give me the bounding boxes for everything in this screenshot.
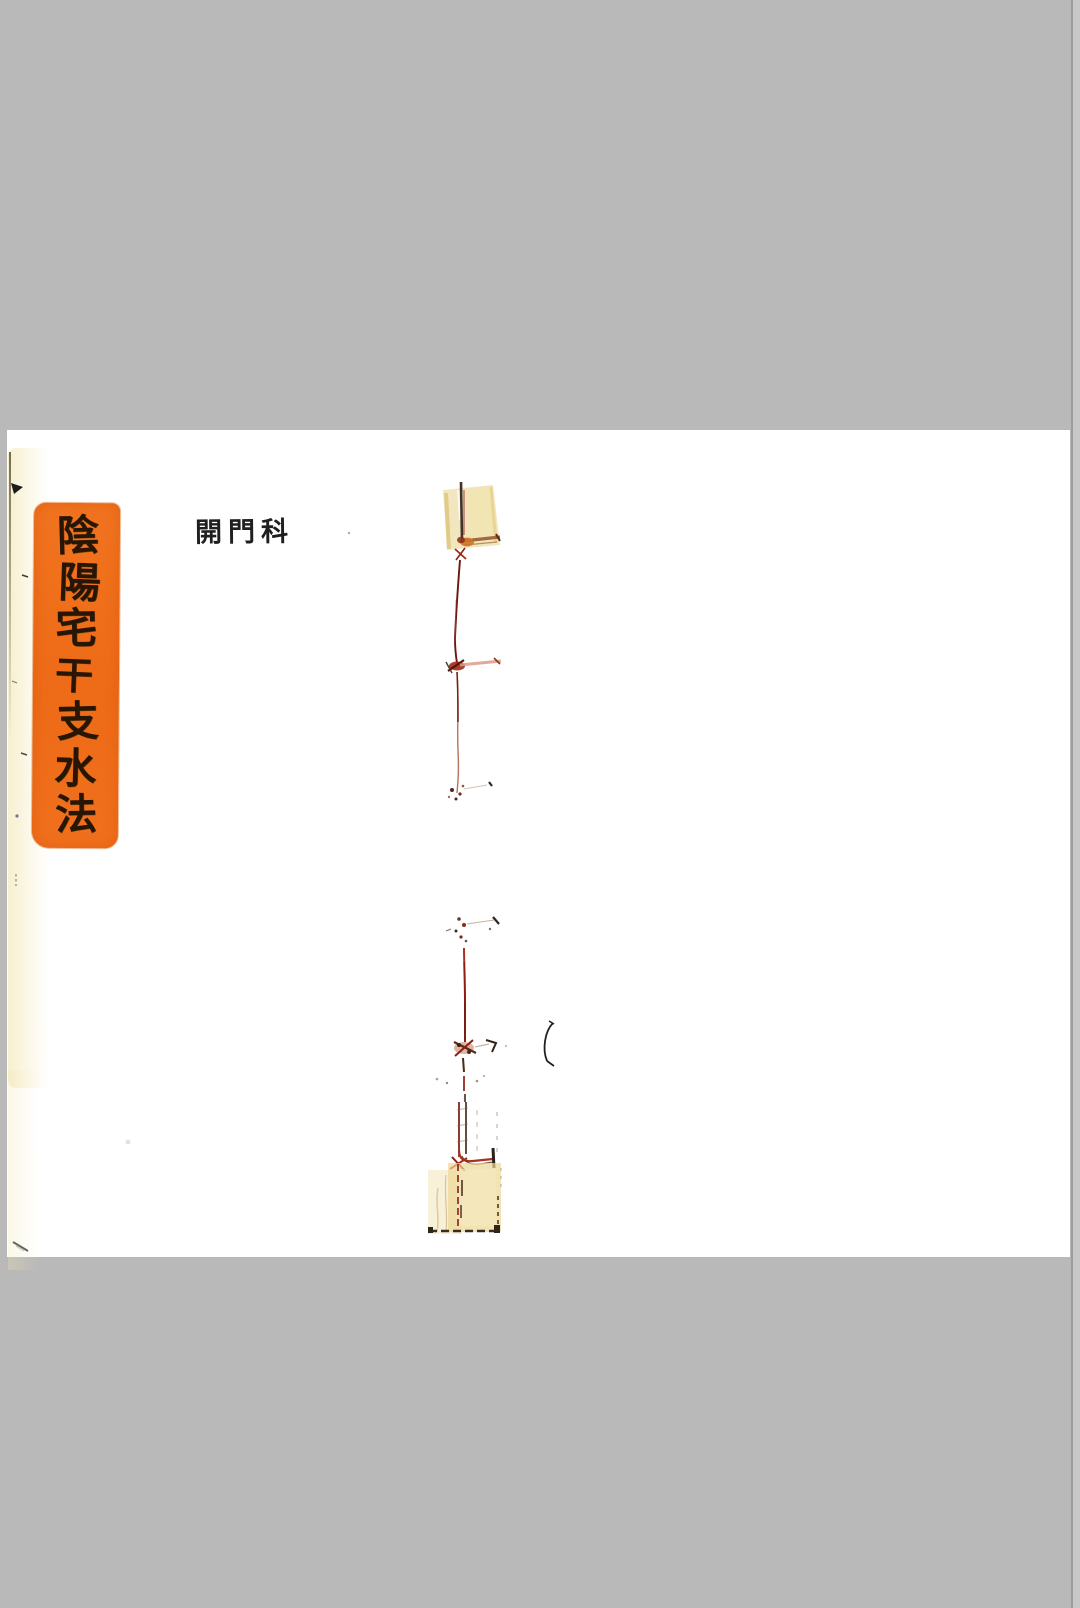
title-char: 宅 — [55, 606, 98, 653]
spine-edge-tint-lower — [8, 1070, 38, 1270]
title-char: 干 — [54, 652, 94, 700]
header-annotation: 開門科 — [195, 509, 294, 549]
scan-right-strip — [1071, 0, 1080, 1608]
scanner-background: 陰 陽 宅 干 支 水 法 開門科 — [0, 0, 1080, 1608]
title-char: 支 — [56, 698, 99, 746]
title-char: 法 — [55, 792, 98, 839]
title-char: 陽 — [58, 559, 102, 607]
title-char: 水 — [54, 745, 97, 793]
title-char: 陰 — [56, 512, 99, 560]
spine-edge-line — [9, 452, 11, 742]
title-label: 陰 陽 宅 干 支 水 法 — [32, 503, 120, 849]
book-cover-page: 陰 陽 宅 干 支 水 法 開門科 — [7, 430, 1070, 1257]
